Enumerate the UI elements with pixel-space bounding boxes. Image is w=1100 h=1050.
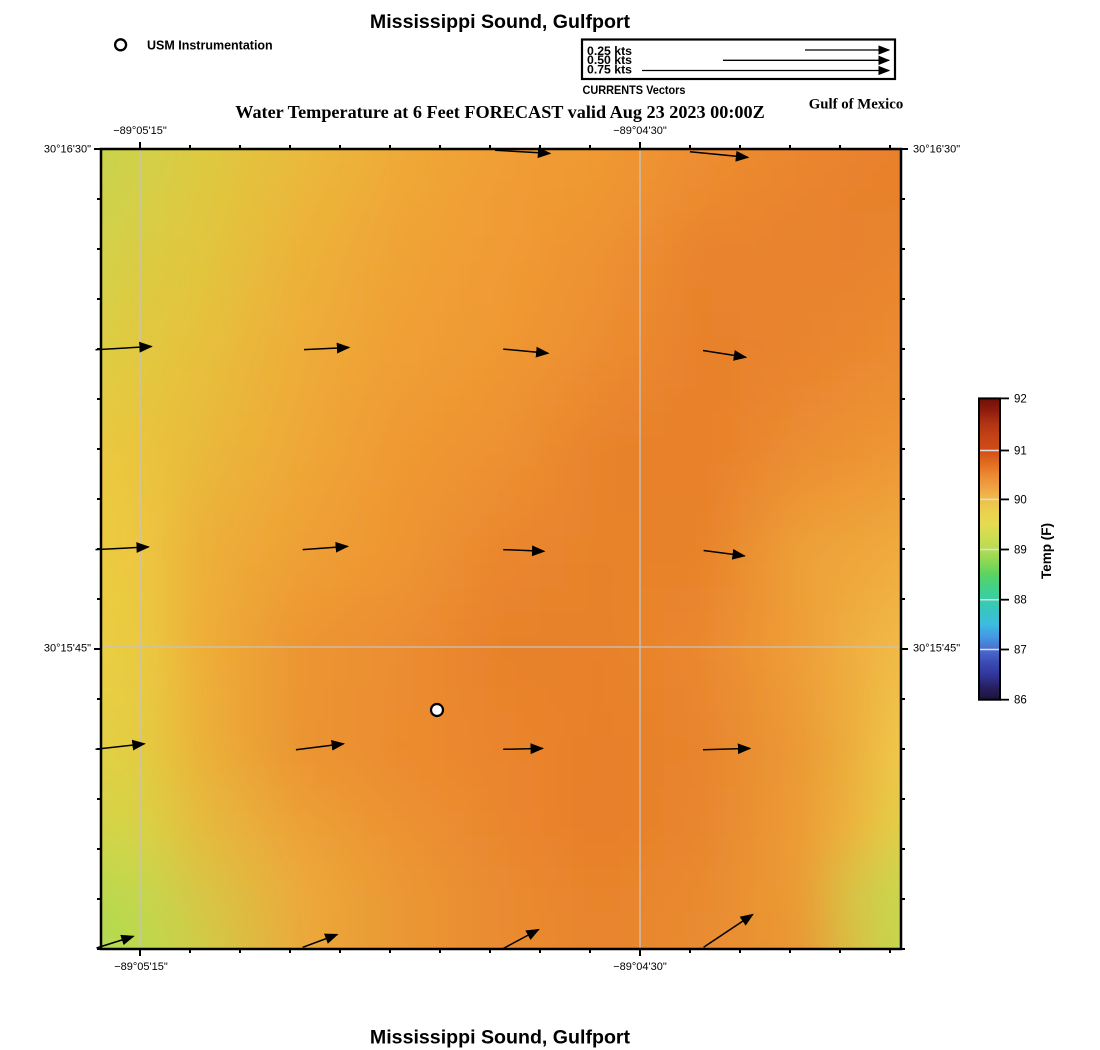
svg-text:−89°05'15": −89°05'15" — [114, 961, 168, 973]
svg-text:88: 88 — [1014, 595, 1027, 607]
svg-text:Gulf of Mexico: Gulf of Mexico — [809, 97, 904, 113]
svg-text:−89°04'30": −89°04'30" — [613, 125, 667, 137]
svg-text:92: 92 — [1014, 393, 1027, 405]
svg-text:30°15'45": 30°15'45" — [913, 643, 960, 655]
svg-text:87: 87 — [1014, 645, 1027, 657]
svg-text:90: 90 — [1014, 494, 1027, 506]
svg-text:30°15'45": 30°15'45" — [44, 643, 91, 655]
svg-text:Mississippi Sound, Gulfport: Mississippi Sound, Gulfport — [370, 11, 631, 33]
svg-text:CURRENTS Vectors: CURRENTS Vectors — [583, 83, 686, 97]
svg-text:Water Temperature at 6 Feet FO: Water Temperature at 6 Feet FORECAST val… — [235, 102, 764, 122]
svg-text:86: 86 — [1014, 695, 1027, 707]
svg-text:−89°04'30": −89°04'30" — [613, 961, 667, 973]
svg-text:30°16'30": 30°16'30" — [913, 144, 960, 156]
svg-text:Mississippi Sound, Gulfport: Mississippi Sound, Gulfport — [370, 1027, 631, 1049]
svg-text:91: 91 — [1014, 446, 1027, 458]
svg-text:89: 89 — [1014, 545, 1027, 557]
svg-text:30°16'30": 30°16'30" — [44, 144, 91, 156]
svg-text:USM Instrumentation: USM Instrumentation — [147, 39, 273, 53]
svg-text:Temp (F): Temp (F) — [1039, 523, 1054, 579]
svg-text:0.75 kts: 0.75 kts — [587, 63, 632, 77]
svg-text:−89°05'15": −89°05'15" — [113, 125, 167, 137]
